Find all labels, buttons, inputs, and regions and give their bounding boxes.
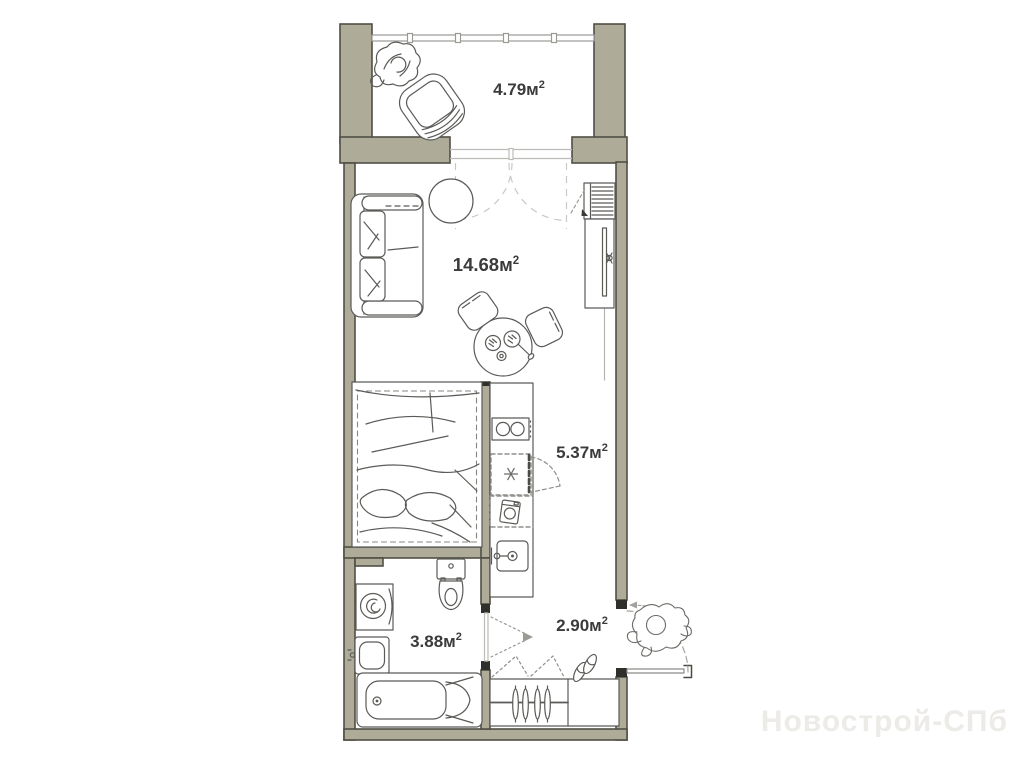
wall-divider-right: [572, 137, 627, 163]
dining-table: [474, 318, 535, 376]
kitchen-sink: [492, 541, 529, 571]
area-label-bathroom: 3.88м2: [410, 631, 462, 651]
bathtub: [357, 673, 482, 727]
bathroom-door: [485, 613, 534, 661]
wall-cabinet: [571, 183, 615, 219]
area-label-balcony: 4.79м2: [493, 79, 545, 99]
area-label-living: 14.68м2: [453, 254, 519, 275]
bed: [352, 382, 482, 547]
area-label-hallway: 2.90м2: [556, 615, 608, 635]
floor-lamp: [429, 179, 473, 223]
tv: [603, 228, 607, 296]
cup: [497, 352, 506, 361]
wall-outer-right-up: [616, 162, 627, 600]
floor-plan: 4.79м2 14.68м2 5.37м2 3.88м2 2.90м2 Ново…: [0, 0, 1024, 768]
wall-bath-niche: [355, 558, 383, 566]
person-figure: [627, 604, 691, 656]
balcony-window: [372, 34, 594, 43]
wall-divider-left: [340, 137, 450, 163]
wall-balcony-right: [594, 24, 625, 143]
washing-machine: [356, 584, 393, 630]
tv-console: [585, 219, 614, 308]
wall-bed-bath: [344, 547, 482, 558]
balcony-plant: [371, 42, 421, 87]
area-label-kitchen: 5.37м2: [556, 442, 608, 462]
wall-bath-hall-up: [481, 558, 490, 604]
watermark-text: Новострой-СПб: [761, 705, 1008, 738]
toilet: [437, 559, 465, 610]
sofa: [351, 194, 423, 317]
wall-outer-bottom: [344, 729, 627, 740]
hall-wardrobe: [490, 656, 619, 726]
wall-balcony-left: [340, 24, 372, 143]
balcony-door-window: [450, 149, 572, 160]
floor-plan-page: 4.79м2 14.68м2 5.37м2 3.88м2 2.90м2 Ново…: [0, 0, 1024, 768]
cooktop: [492, 418, 531, 440]
